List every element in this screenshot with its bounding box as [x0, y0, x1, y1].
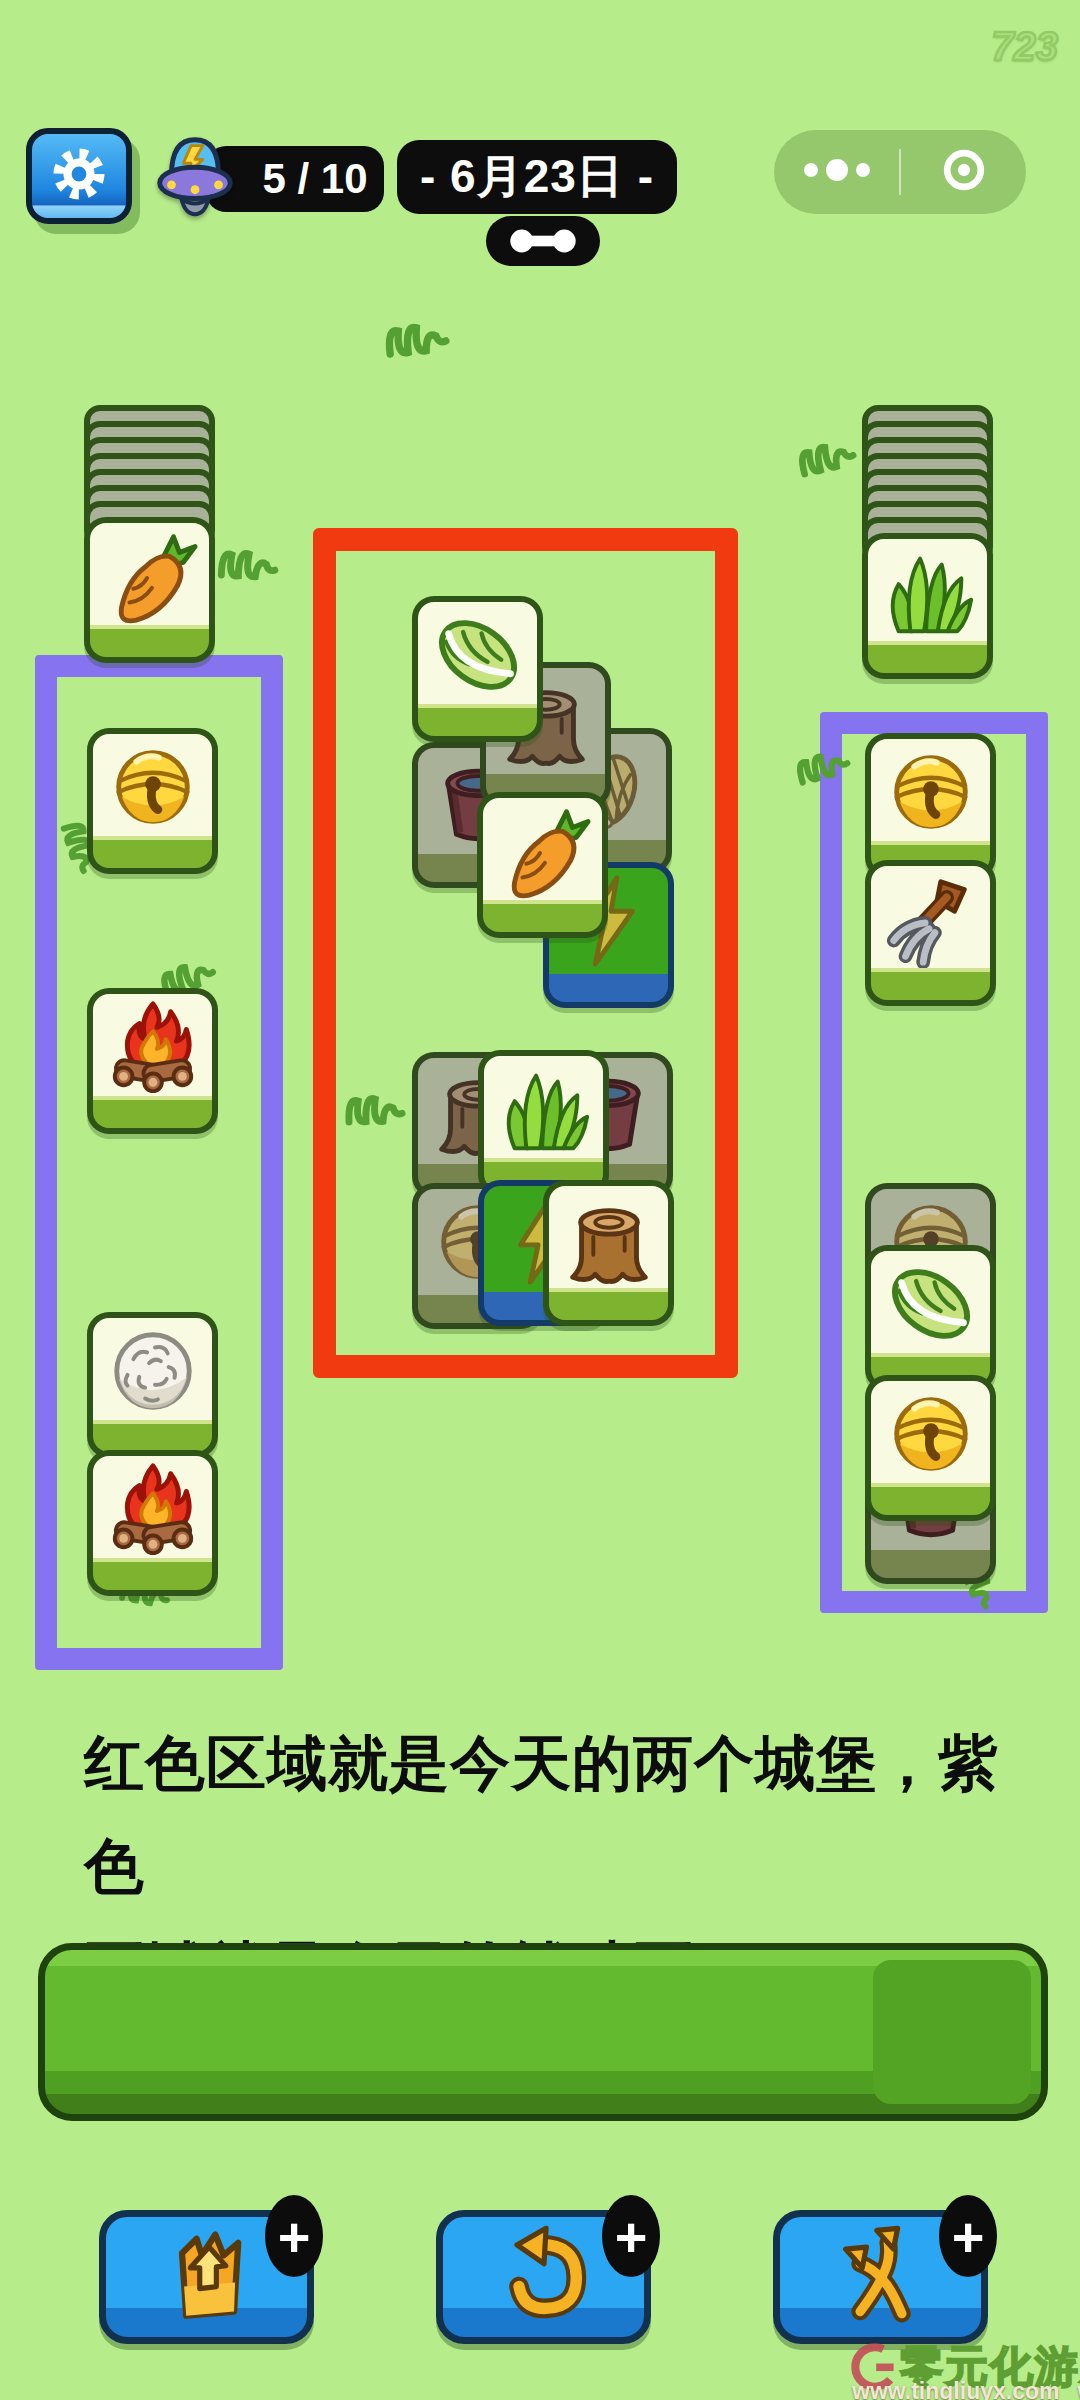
grass-doodle-icon [385, 318, 451, 363]
grass-tile[interactable] [862, 533, 993, 679]
undo-icon [492, 2226, 596, 2328]
settings-button[interactable] [26, 128, 132, 224]
bell-icon [882, 739, 980, 845]
grass-icon [495, 1056, 593, 1162]
cabbage-icon [882, 1251, 980, 1357]
bell-icon [882, 1381, 980, 1487]
grass-doodle-icon [795, 434, 860, 483]
game-screen: 723 5 / 10 - 6月23日 - [0, 0, 1080, 2400]
grass-icon [879, 539, 977, 645]
stump-tile[interactable] [543, 1180, 674, 1326]
bell-tile[interactable] [87, 728, 218, 874]
withdraw-button[interactable]: + [99, 2210, 314, 2344]
ufo-energy-icon [146, 128, 244, 226]
cabbage-icon [429, 602, 527, 708]
tile-face [93, 1318, 212, 1452]
add-more-badge[interactable]: + [939, 2195, 997, 2277]
bell-tile[interactable] [865, 1375, 996, 1521]
undo-button[interactable]: + [436, 2210, 651, 2344]
more-button[interactable] [774, 130, 899, 214]
tile-face [93, 1456, 212, 1590]
tile-tray [38, 1943, 1048, 2121]
miniprogram-capsule [774, 130, 1026, 214]
build-number-watermark: 723 [991, 24, 1058, 69]
add-more-badge[interactable]: + [602, 2195, 660, 2277]
more-icon [799, 155, 875, 189]
grass-tile[interactable] [478, 1050, 609, 1196]
bell-icon [104, 734, 202, 840]
carrot-icon [494, 798, 592, 904]
site-watermark-urls: www.tingliuyx.comwww.06zyx.com [852, 2378, 1080, 2400]
target-icon [936, 142, 992, 202]
tile-face [90, 523, 209, 657]
carrot-tile[interactable] [477, 792, 608, 938]
cotton-icon [104, 1318, 202, 1424]
date-label: - 6月23日 - [397, 140, 677, 214]
tile-face [871, 739, 990, 873]
tray-empty-slots [873, 1960, 1031, 2104]
caption-line-1: 红色区域就是今天的两个城堡，紫色 [84, 1712, 1024, 1918]
grass-doodle-icon [344, 1088, 409, 1135]
grass-doodle-icon [215, 541, 282, 592]
stump-icon [560, 1186, 658, 1292]
tile-face [483, 798, 602, 932]
tile-face [93, 734, 212, 868]
tile-face [868, 539, 987, 673]
tile-face [549, 1186, 668, 1320]
tile-face [871, 1251, 990, 1385]
tile-face [484, 1056, 603, 1190]
campfire-tile[interactable] [87, 988, 218, 1134]
shuffle-icon [829, 2226, 933, 2328]
campfire-icon [104, 1456, 202, 1562]
site-url-1: www.tingliuyx.com [852, 2378, 1059, 2400]
tile-face [871, 1381, 990, 1515]
shuffle-button[interactable]: + [773, 2210, 988, 2344]
add-more-badge[interactable]: + [265, 2195, 323, 2277]
tile-face [871, 866, 990, 1000]
bone-icon [486, 216, 600, 266]
tile-face [418, 602, 537, 736]
carrot-tile[interactable] [84, 517, 215, 663]
pitchfork-icon [882, 866, 980, 972]
campfire-icon [104, 994, 202, 1100]
campfire-tile[interactable] [87, 1450, 218, 1596]
pitchfork-tile[interactable] [865, 860, 996, 1006]
cabbage-tile[interactable] [412, 596, 543, 742]
bell-tile[interactable] [865, 733, 996, 879]
carrot-icon [101, 523, 199, 629]
cabbage-tile[interactable] [865, 1245, 996, 1391]
exit-button[interactable] [901, 130, 1026, 214]
gear-icon [42, 137, 116, 215]
withdraw-icon [155, 2226, 259, 2328]
cotton-tile[interactable] [87, 1312, 218, 1458]
tile-face [93, 994, 212, 1128]
